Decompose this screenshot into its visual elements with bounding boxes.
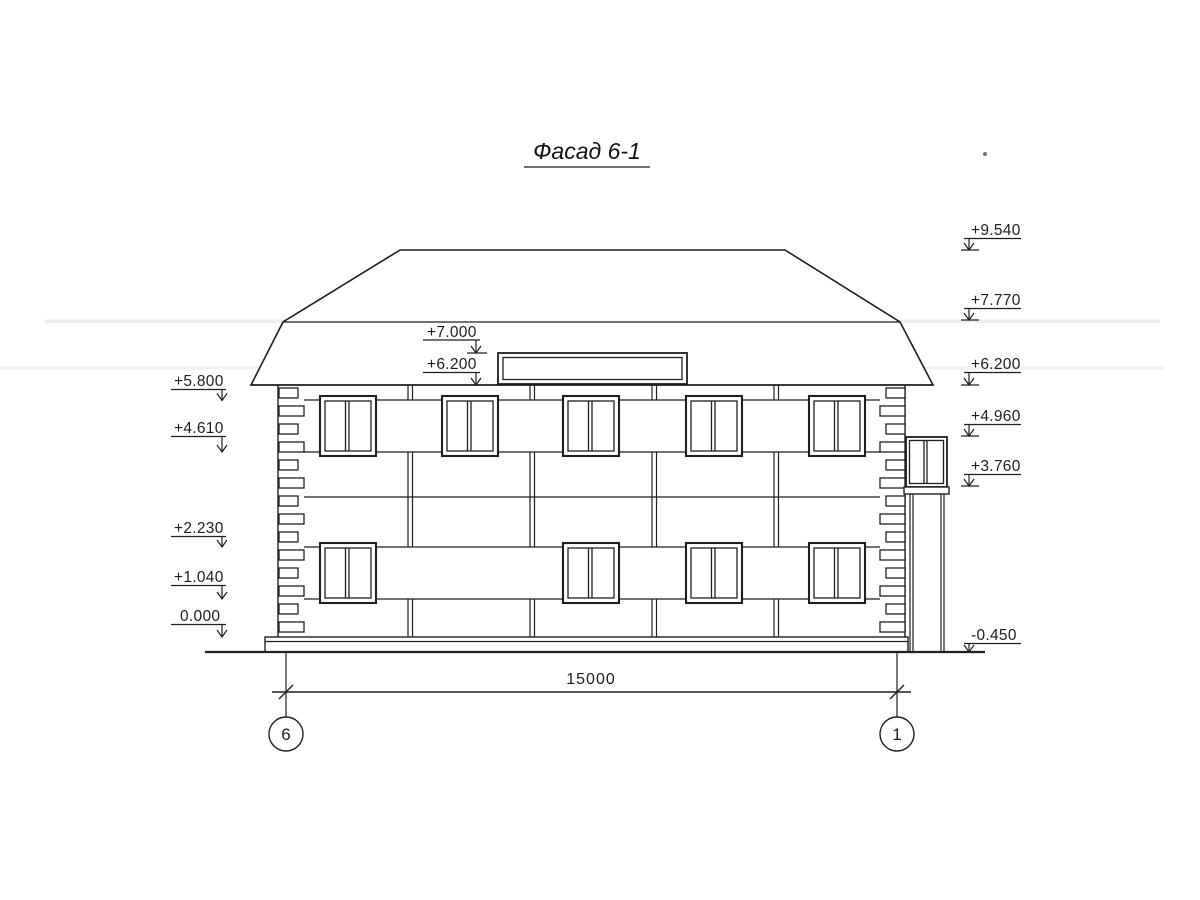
svg-text:+9.540: +9.540 (971, 222, 1021, 239)
shaft-sill (904, 487, 949, 494)
axis-bubble-6: 6 (269, 717, 303, 751)
window (686, 396, 742, 456)
svg-text:+1.040: +1.040 (174, 569, 224, 586)
level-mark-right-m0450: -0.450 (964, 627, 1021, 652)
drawing-sheet: Фасад 6-1 (0, 0, 1200, 900)
level-mark-right-7770: +7.770 (961, 292, 1021, 320)
lower-windows (320, 543, 865, 603)
window (686, 543, 742, 603)
level-mark-right-9540: +9.540 (961, 222, 1021, 250)
window (809, 543, 865, 603)
left-quoins (279, 388, 304, 632)
right-quoins (880, 388, 905, 632)
level-mark-left-4610: +4.610 (171, 420, 227, 452)
axis-bubble-1: 1 (880, 717, 914, 751)
window (809, 396, 865, 456)
attic-panel (498, 353, 687, 384)
window (320, 396, 376, 456)
plinth (265, 637, 908, 652)
window (320, 543, 376, 603)
level-mark-right-4960: +4.960 (961, 408, 1021, 436)
facade-drawing: Фасад 6-1 (0, 0, 1200, 900)
window (442, 396, 498, 456)
svg-text:+3.760: +3.760 (971, 458, 1021, 475)
svg-text:+6.200: +6.200 (971, 356, 1021, 373)
level-mark-left-5800: +5.800 (171, 373, 227, 401)
level-mark-left-0000: 0.000 (171, 608, 227, 637)
svg-text:6: 6 (281, 725, 290, 744)
upper-windows (320, 396, 865, 456)
drawing-title: Фасад 6-1 (533, 138, 641, 164)
svg-text:+7.000: +7.000 (427, 324, 477, 341)
svg-text:+6.200: +6.200 (427, 356, 477, 373)
title-block: Фасад 6-1 (524, 138, 650, 167)
level-mark-left-2230: +2.230 (171, 520, 227, 547)
svg-text:1: 1 (892, 725, 901, 744)
window (563, 543, 619, 603)
svg-text:+5.800: +5.800 (174, 373, 224, 390)
dimension-15000: 15000 (272, 652, 911, 717)
window (563, 396, 619, 456)
dimension-value: 15000 (566, 671, 616, 688)
side-shaft (904, 437, 949, 652)
level-mark-right-3760: +3.760 (961, 458, 1021, 486)
svg-text:0.000: 0.000 (180, 608, 220, 625)
svg-text:+7.770: +7.770 (971, 292, 1021, 309)
svg-text:+4.960: +4.960 (971, 408, 1021, 425)
svg-text:+4.610: +4.610 (174, 420, 224, 437)
level-mark-right-6200: +6.200 (961, 356, 1021, 385)
svg-text:+2.230: +2.230 (174, 520, 224, 537)
level-mark-left-1040: +1.040 (171, 569, 227, 599)
svg-text:-0.450: -0.450 (971, 627, 1017, 644)
